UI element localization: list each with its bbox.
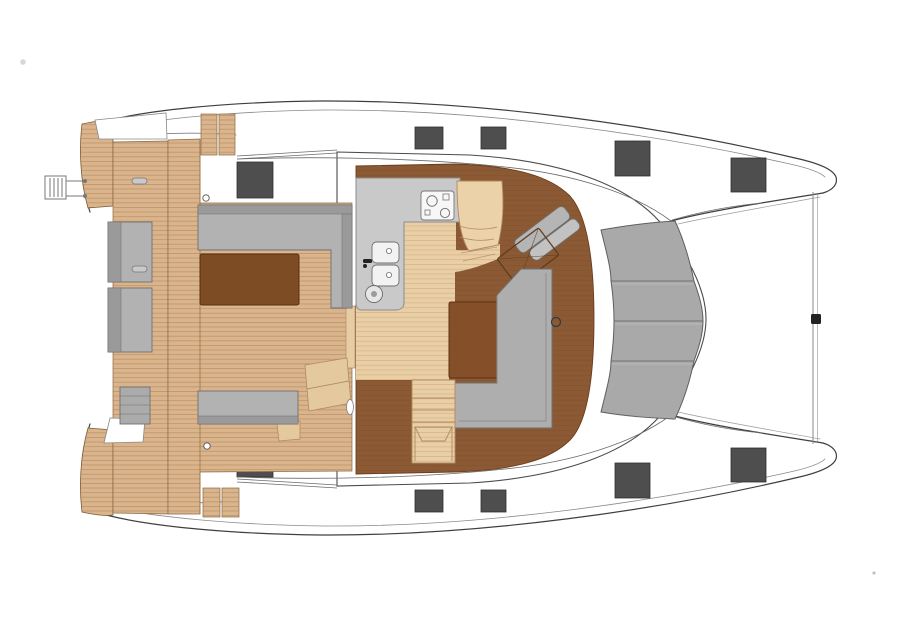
deck-plan-canvas [0, 0, 900, 636]
print-artifact-dot [20, 59, 26, 65]
companionway-steps [412, 380, 455, 463]
print-artifact-dot [872, 571, 875, 574]
deck-ring-fitting [204, 443, 210, 449]
side-deck-step [203, 488, 220, 517]
dining-table [449, 302, 498, 378]
deck-hatch-port [615, 141, 650, 176]
deck-hatch-starboard [731, 448, 766, 482]
cockpit-bench-aft [198, 391, 298, 424]
deck-ring-fitting [203, 195, 209, 201]
door-handle [347, 400, 354, 415]
transom-bench-upper [108, 222, 152, 282]
cleat [132, 266, 147, 272]
side-deck-step [219, 114, 235, 155]
deck-plan-drawing [0, 0, 900, 636]
deck-hatch-starboard [481, 490, 506, 512]
cleat [132, 178, 147, 184]
bowsprit-fitting [811, 314, 821, 324]
cockpit-table [200, 254, 299, 305]
transom-bench-lower [108, 288, 152, 352]
round-fitting-center [371, 291, 377, 297]
deck-hatch-starboard [615, 463, 650, 498]
faucet [363, 259, 372, 263]
deck-hatch-starboard [415, 490, 443, 512]
deck-hatch-port [237, 162, 273, 198]
deck-hatch-port [415, 127, 443, 149]
transom-step-unit [120, 387, 150, 424]
deck-hatch-port [731, 158, 766, 192]
side-deck-step [222, 488, 239, 517]
side-deck-step [201, 114, 217, 155]
deck-hatch-port [481, 127, 506, 149]
faucet-base [363, 264, 367, 268]
